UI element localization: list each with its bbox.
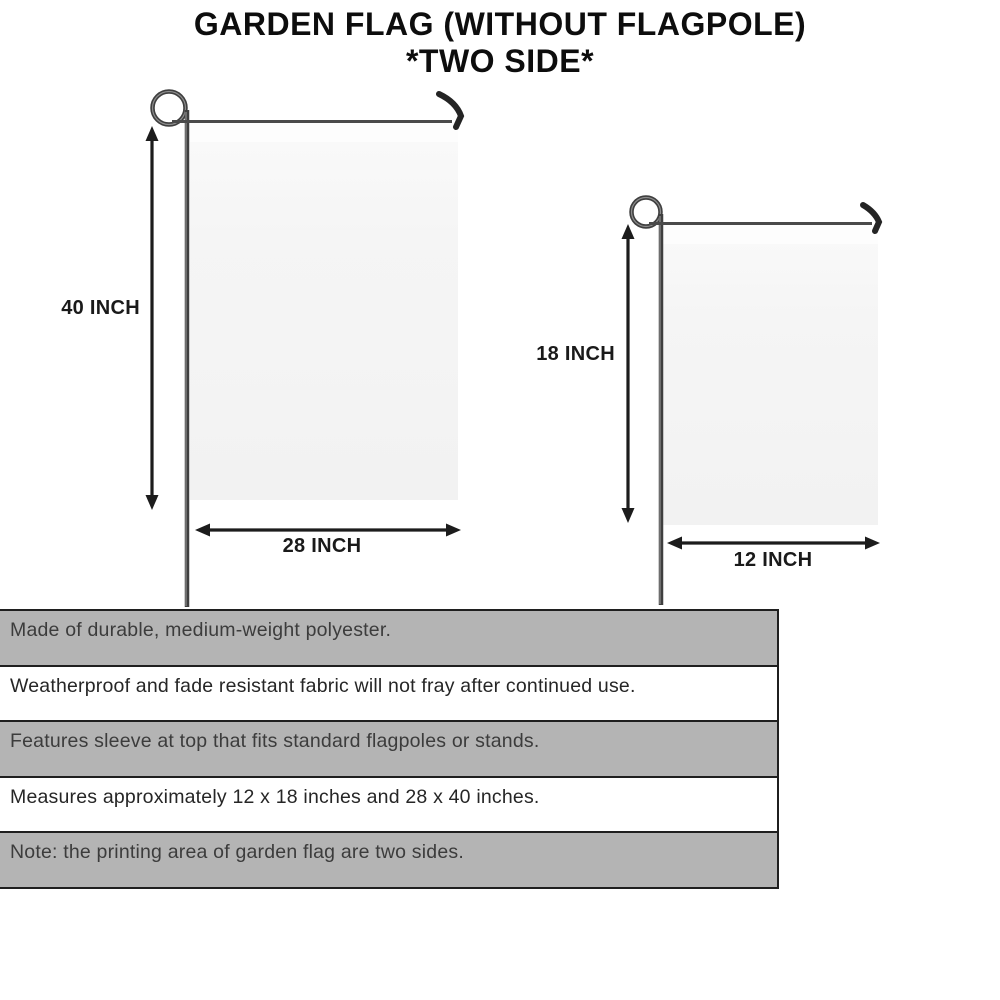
feature-row-material: Made of durable, medium-weight polyester… [0,611,777,667]
width-label-small: 12 INCH [673,549,873,572]
product-info-image: GARDEN FLAG (WITHOUT FLAGPOLE) *TWO SIDE… [0,0,1000,1000]
feature-row-note: Note: the printing area of garden flag a… [0,833,777,889]
feature-row-measurements: Measures approximately 12 x 18 inches an… [0,778,777,834]
width-arrow-small [667,537,880,550]
feature-table: Made of durable, medium-weight polyester… [0,609,779,889]
flagpole-loop-highlight [153,92,186,125]
height-arrow-large [146,126,159,510]
feature-row-weatherproof: Weatherproof and fade resistant fabric w… [0,667,777,723]
height-arrow-small [622,224,635,523]
width-label-large: 28 INCH [222,535,422,558]
height-label-small: 18 INCH [503,343,615,366]
flagpole-hook-icon [863,205,879,231]
feature-row-sleeve: Features sleeve at top that fits standar… [0,722,777,778]
height-label-large: 40 INCH [28,297,140,320]
